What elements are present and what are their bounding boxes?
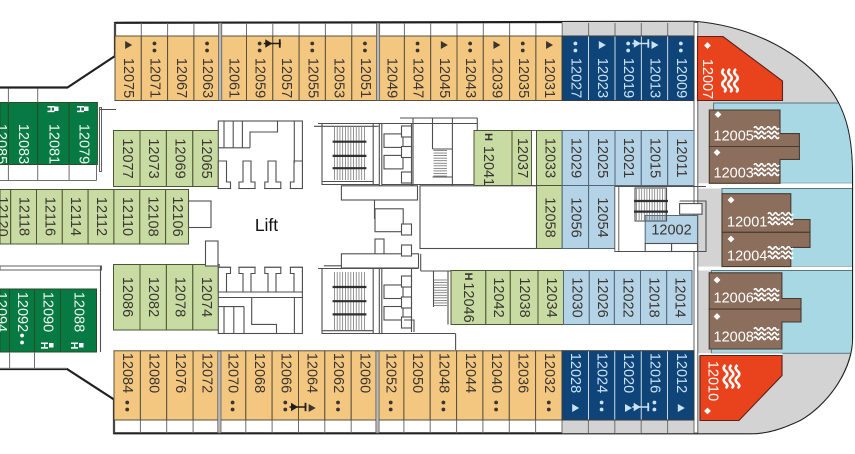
svg-text:12079: 12079 xyxy=(75,124,91,164)
svg-text:12061: 12061 xyxy=(225,58,241,98)
svg-text:12019: 12019 xyxy=(620,58,636,98)
svg-text:12036: 12036 xyxy=(514,353,530,393)
svg-text:12075: 12075 xyxy=(120,58,136,98)
svg-text:12022: 12022 xyxy=(619,277,635,317)
svg-text:12065: 12065 xyxy=(198,138,214,178)
svg-text:12033: 12033 xyxy=(541,138,557,178)
svg-text:12020: 12020 xyxy=(620,353,636,393)
svg-text:12070: 12070 xyxy=(225,353,241,393)
svg-text:Lift: Lift xyxy=(255,215,278,235)
svg-text:12069: 12069 xyxy=(172,138,188,178)
svg-text:12029: 12029 xyxy=(567,138,583,178)
svg-text:12045: 12045 xyxy=(436,58,452,98)
svg-text:12023: 12023 xyxy=(594,58,610,98)
svg-text:12086: 12086 xyxy=(119,277,135,317)
svg-text:H: H xyxy=(68,342,80,350)
svg-text:12059: 12059 xyxy=(252,58,268,98)
svg-text:12110: 12110 xyxy=(119,197,135,236)
svg-text:12072: 12072 xyxy=(198,353,214,393)
svg-text:12009: 12009 xyxy=(673,58,689,98)
svg-text:12077: 12077 xyxy=(119,138,135,178)
svg-text:12011: 12011 xyxy=(673,138,689,177)
svg-text:12062: 12062 xyxy=(330,353,346,393)
svg-text:12002: 12002 xyxy=(651,223,691,239)
svg-text:12038: 12038 xyxy=(516,277,532,317)
svg-text:12026: 12026 xyxy=(594,277,610,317)
svg-text:12066: 12066 xyxy=(277,353,293,393)
svg-text:12039: 12039 xyxy=(488,58,504,98)
svg-text:12083: 12083 xyxy=(15,124,31,164)
svg-text:12004: 12004 xyxy=(727,249,767,265)
svg-text:12118: 12118 xyxy=(16,197,32,236)
svg-text:12080: 12080 xyxy=(146,353,162,393)
svg-text:12076: 12076 xyxy=(172,353,188,393)
svg-text:12092: 12092 xyxy=(14,292,30,332)
svg-text:12116: 12116 xyxy=(41,197,57,236)
svg-text:12050: 12050 xyxy=(409,353,425,393)
svg-text:12112: 12112 xyxy=(93,197,109,236)
svg-text:12085: 12085 xyxy=(0,124,9,164)
svg-text:12035: 12035 xyxy=(515,58,531,98)
svg-text:12106: 12106 xyxy=(169,196,185,236)
svg-text:12034: 12034 xyxy=(543,277,559,317)
svg-text:H: H xyxy=(462,273,474,281)
svg-text:12005: 12005 xyxy=(714,129,754,145)
svg-text:12084: 12084 xyxy=(119,353,135,393)
svg-text:12074: 12074 xyxy=(198,277,214,317)
svg-text:12055: 12055 xyxy=(304,58,320,98)
svg-text:12068: 12068 xyxy=(251,353,267,393)
svg-text:12073: 12073 xyxy=(145,138,161,178)
svg-text:12057: 12057 xyxy=(278,58,294,98)
svg-text:12047: 12047 xyxy=(410,58,426,98)
svg-text:12064: 12064 xyxy=(304,353,320,393)
svg-text:12060: 12060 xyxy=(356,353,372,393)
svg-text:12046: 12046 xyxy=(460,282,476,322)
svg-text:12082: 12082 xyxy=(145,277,161,317)
svg-text:12012: 12012 xyxy=(673,353,689,393)
svg-text:12044: 12044 xyxy=(462,353,478,393)
svg-text:H: H xyxy=(38,342,50,350)
svg-text:12003: 12003 xyxy=(714,166,754,182)
svg-text:12032: 12032 xyxy=(541,353,557,393)
svg-text:12041: 12041 xyxy=(480,146,496,186)
svg-text:12052: 12052 xyxy=(383,353,399,393)
svg-text:12027: 12027 xyxy=(567,58,583,98)
svg-text:12008: 12008 xyxy=(714,330,754,346)
svg-text:12051: 12051 xyxy=(357,58,373,98)
svg-text:12037: 12037 xyxy=(514,138,530,178)
svg-text:12013: 12013 xyxy=(647,58,663,98)
svg-text:12063: 12063 xyxy=(199,58,215,98)
svg-text:12025: 12025 xyxy=(594,138,610,178)
svg-text:12048: 12048 xyxy=(435,353,451,393)
svg-text:12053: 12053 xyxy=(331,58,347,98)
svg-text:12007: 12007 xyxy=(699,59,715,99)
svg-text:12108: 12108 xyxy=(145,196,161,236)
svg-text:12094: 12094 xyxy=(0,292,9,332)
svg-text:12024: 12024 xyxy=(594,353,610,393)
svg-text:12058: 12058 xyxy=(541,197,557,237)
svg-text:H: H xyxy=(482,133,494,141)
svg-text:12042: 12042 xyxy=(490,277,506,317)
svg-text:12021: 12021 xyxy=(620,138,636,178)
svg-text:12071: 12071 xyxy=(146,58,162,98)
svg-text:12006: 12006 xyxy=(714,291,754,307)
svg-text:12043: 12043 xyxy=(462,58,478,98)
svg-text:12016: 12016 xyxy=(646,353,662,393)
svg-text:12056: 12056 xyxy=(567,197,583,237)
svg-text:12015: 12015 xyxy=(647,138,663,178)
svg-text:12067: 12067 xyxy=(173,58,189,98)
svg-text:12010: 12010 xyxy=(705,361,721,401)
svg-text:12028: 12028 xyxy=(567,353,583,393)
svg-text:12018: 12018 xyxy=(646,277,662,317)
svg-text:12078: 12078 xyxy=(172,277,188,317)
svg-text:12120: 12120 xyxy=(0,196,10,236)
svg-text:12031: 12031 xyxy=(541,58,557,98)
svg-text:12030: 12030 xyxy=(568,277,584,317)
svg-text:12114: 12114 xyxy=(67,197,83,236)
svg-text:12081: 12081 xyxy=(45,124,61,164)
svg-text:12001: 12001 xyxy=(727,215,767,231)
svg-text:12090: 12090 xyxy=(40,292,56,332)
svg-text:12049: 12049 xyxy=(383,58,399,98)
svg-text:12040: 12040 xyxy=(488,353,504,393)
svg-text:12014: 12014 xyxy=(671,277,687,317)
svg-text:12088: 12088 xyxy=(71,292,87,332)
svg-text:12054: 12054 xyxy=(594,197,610,237)
